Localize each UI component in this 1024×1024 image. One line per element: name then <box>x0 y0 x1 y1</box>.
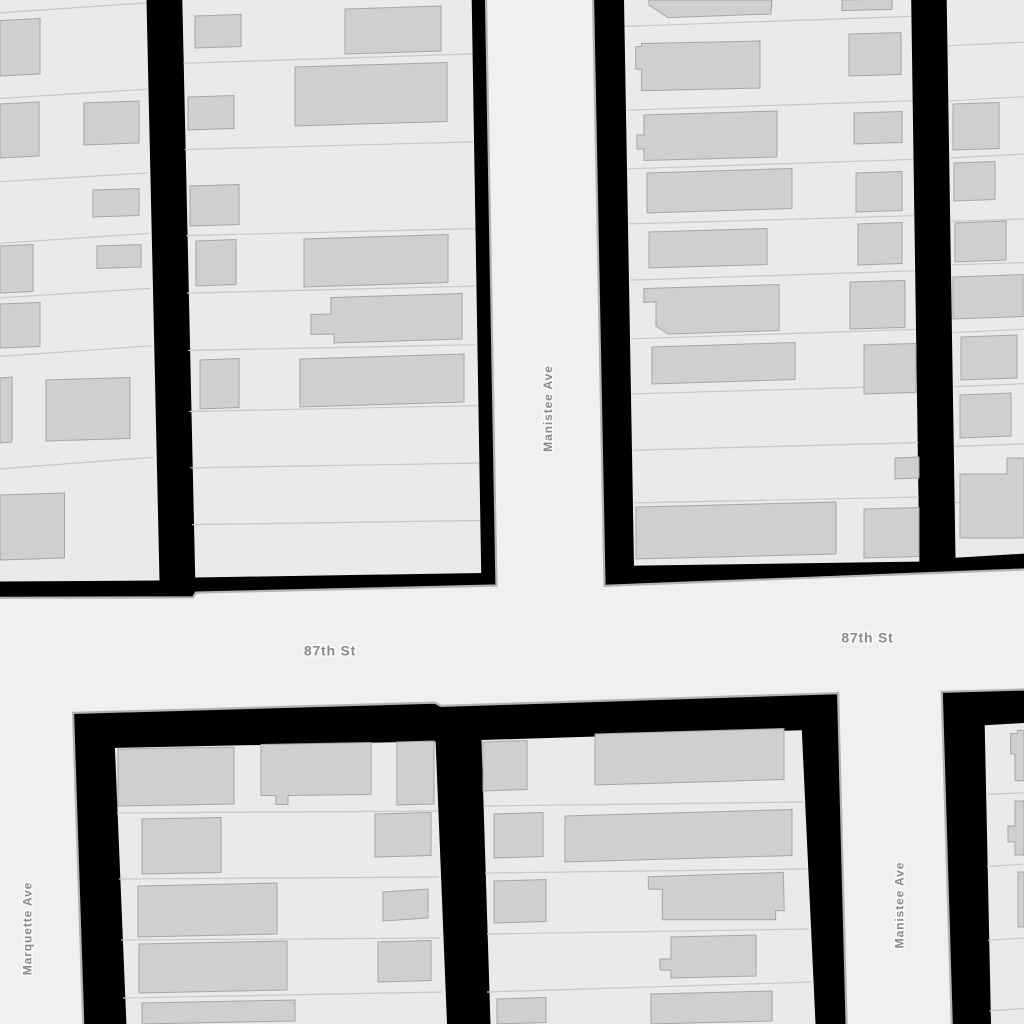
svg-text:Manistee Ave: Manistee Ave <box>893 862 907 949</box>
svg-text:Manistee Ave: Manistee Ave <box>541 365 555 452</box>
svg-text:Marquette Ave: Marquette Ave <box>21 882 35 976</box>
svg-text:87th St: 87th St <box>841 630 893 646</box>
svg-text:87th St: 87th St <box>304 643 356 659</box>
